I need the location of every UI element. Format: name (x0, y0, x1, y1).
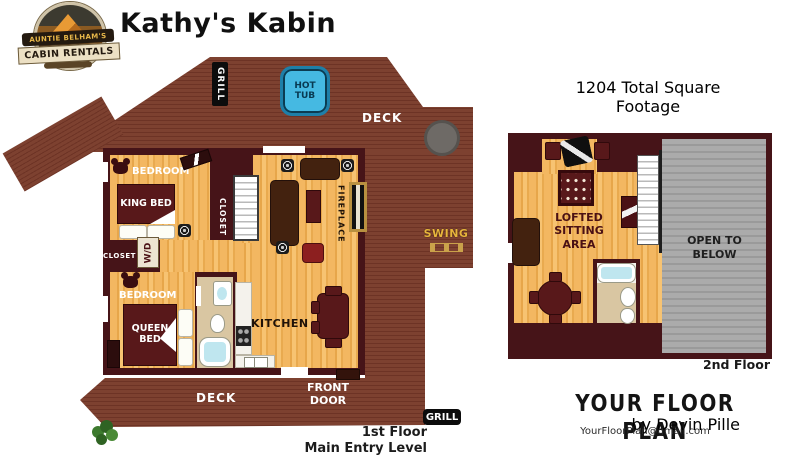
deck-bottom-label: DECK (196, 392, 236, 406)
fireplace-unit (349, 182, 367, 232)
first-floor-caption-line2: Main Entry Level (295, 441, 427, 457)
window-gap-bedroom1 (100, 162, 108, 182)
bathroom1-door-gap (196, 286, 201, 306)
loft-table-chair-bottom (549, 314, 562, 324)
swing-icon (430, 243, 463, 252)
bathroom1-toilet (210, 314, 225, 333)
speaker-icon-1 (178, 224, 191, 237)
grill-bottom-label: GRILL (423, 409, 461, 425)
armchair-red (302, 243, 324, 263)
second-floor-caption: 2nd Floor (690, 357, 770, 371)
dining-table (317, 293, 349, 339)
grill-top-label: GRILL (212, 62, 228, 106)
bathroom2-tub (598, 264, 635, 282)
dining-chair-top (325, 286, 342, 296)
door-mat (336, 369, 360, 380)
closet1-label: CLOSET (213, 193, 230, 241)
loft-chair-right (594, 142, 610, 160)
kitchen-stove (236, 326, 251, 346)
loft-table-chair-right (571, 291, 581, 304)
closet2-label: CLOSET (103, 249, 136, 263)
fireplace-label: FIREPLACE (334, 184, 348, 244)
sofa-left (270, 180, 299, 246)
floor-plan-image: AUNTIE BELHAM'S CABIN RENTALS Kathy's Ka… (0, 0, 798, 467)
bedroom2-bench (107, 340, 120, 368)
bathroom2-sink (620, 287, 636, 307)
sink-basin (217, 287, 227, 300)
coffee-table (306, 190, 321, 223)
bathroom2-toilet (620, 308, 635, 324)
branding-email: YourFloorPlan@gmail.com (570, 426, 720, 437)
dining-chair-bottom (325, 338, 342, 348)
deck-round-table (424, 120, 460, 156)
stairs-second-floor (637, 155, 659, 245)
teddy-bear-icon-2 (123, 276, 138, 288)
window-gap-living (263, 146, 305, 153)
stairs-first-floor (233, 175, 259, 241)
dining-chair-left1 (311, 301, 320, 314)
deck-top (80, 57, 473, 152)
kitchen-label: KITCHEN (251, 317, 309, 330)
washer-dryer: W/D (137, 237, 159, 268)
deck-right-lower (365, 268, 425, 378)
queen-pillow-2 (178, 338, 193, 366)
cabin-rentals-logo: AUNTIE BELHAM'S CABIN RENTALS (16, 0, 120, 76)
loft-couch (512, 218, 540, 266)
loft-table-chair-top (549, 272, 562, 282)
first-floor-caption-line1: 1st Floor (295, 425, 427, 441)
queen-pillow-1 (178, 309, 193, 337)
front-door-label: FRONT DOOR (297, 380, 359, 410)
teddy-bear-icon-1 (113, 162, 128, 174)
loft-door-panel (621, 196, 638, 228)
window-gap-bedroom2 (100, 296, 108, 322)
hot-tub: HOT TUB (280, 66, 330, 116)
speaker-icon-4 (276, 241, 289, 254)
logo-bottom-scroll (44, 61, 92, 69)
loft-chair-left (545, 142, 561, 160)
square-footage-heading: 1204 Total Square Footage (570, 76, 726, 118)
loft-round-table (537, 280, 573, 316)
speaker-icon-3 (341, 159, 354, 172)
bathroom1-sink (213, 281, 232, 306)
open-to-below-label: OPEN TO BELOW (686, 226, 743, 270)
page-title: Kathy's Kabin (120, 8, 336, 39)
bedroom2-label: BEDROOM (119, 290, 176, 302)
deck-top-label: DECK (362, 112, 402, 126)
speaker-icon-2 (281, 159, 294, 172)
sofa-top (300, 158, 340, 180)
deck-bottom (80, 378, 425, 427)
washer-dryer-label: W/D (143, 242, 153, 263)
bedroom1-label: BEDROOM (132, 166, 189, 178)
dining-chair-left2 (311, 321, 320, 334)
kitchen-sink (244, 357, 268, 368)
shrub-icon (90, 420, 122, 446)
loft-table-chair-left (529, 291, 539, 304)
lofted-sitting-area-label: LOFTED SITTING AREA (547, 208, 611, 254)
swing-label: SWING (424, 226, 468, 241)
foosball-table (558, 170, 594, 206)
stair-rail (659, 150, 662, 253)
first-floor-caption: 1st Floor Main Entry Level (295, 425, 427, 459)
bathroom1-tub (200, 338, 230, 366)
front-door-gap (281, 367, 308, 377)
